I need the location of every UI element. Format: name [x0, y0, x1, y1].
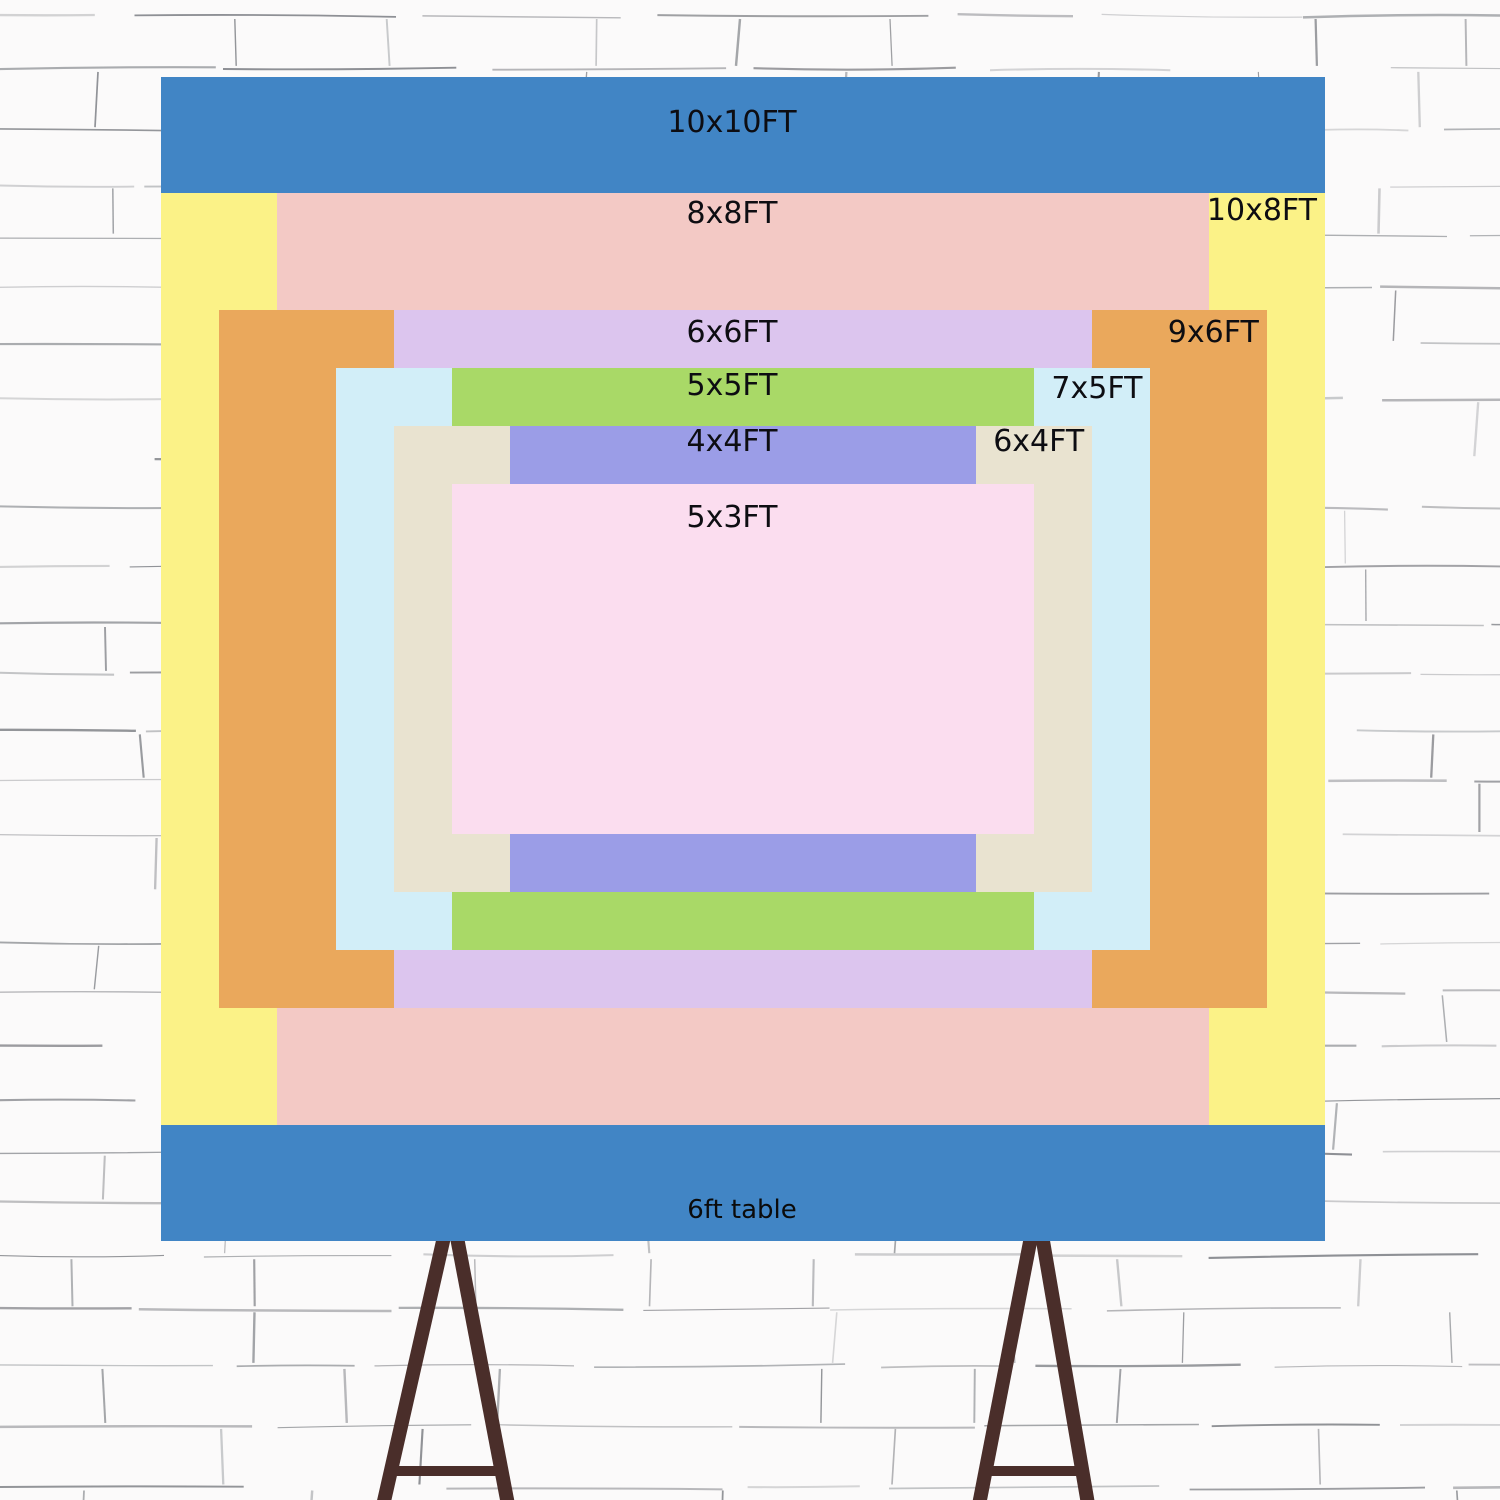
backdrop-size-chart: 10x10FT10x8FT8x8FT9x6FT6x6FT7x5FT5x5FT6x…	[0, 0, 1500, 1500]
size-label-6x6ft: 6x6FT	[686, 316, 777, 351]
six-ft-table	[382, 1198, 1092, 1500]
size-label-10x8ft: 10x8FT	[1207, 194, 1317, 229]
size-label-8x8ft: 8x8FT	[686, 197, 777, 232]
size-label-7x5ft: 7x5FT	[1051, 372, 1142, 407]
size-label-6x4ft: 6x4FT	[993, 425, 1084, 460]
table-trestle-right	[978, 1206, 1089, 1500]
table-trestle-left	[382, 1206, 509, 1500]
size-rect-5x3ft: 5x3FT	[452, 484, 1034, 833]
size-label-9x6ft: 9x6FT	[1168, 316, 1259, 351]
size-comparison-board: 10x10FT10x8FT8x8FT9x6FT6x6FT7x5FT5x5FT6x…	[161, 77, 1325, 1241]
size-label-5x5ft: 5x5FT	[687, 369, 778, 404]
size-label-5x3ft: 5x3FT	[687, 501, 778, 536]
size-label-10x10ft: 10x10FT	[667, 106, 796, 141]
table-size-label: 6ft table	[392, 1196, 1092, 1224]
size-label-4x4ft: 4x4FT	[686, 425, 777, 460]
